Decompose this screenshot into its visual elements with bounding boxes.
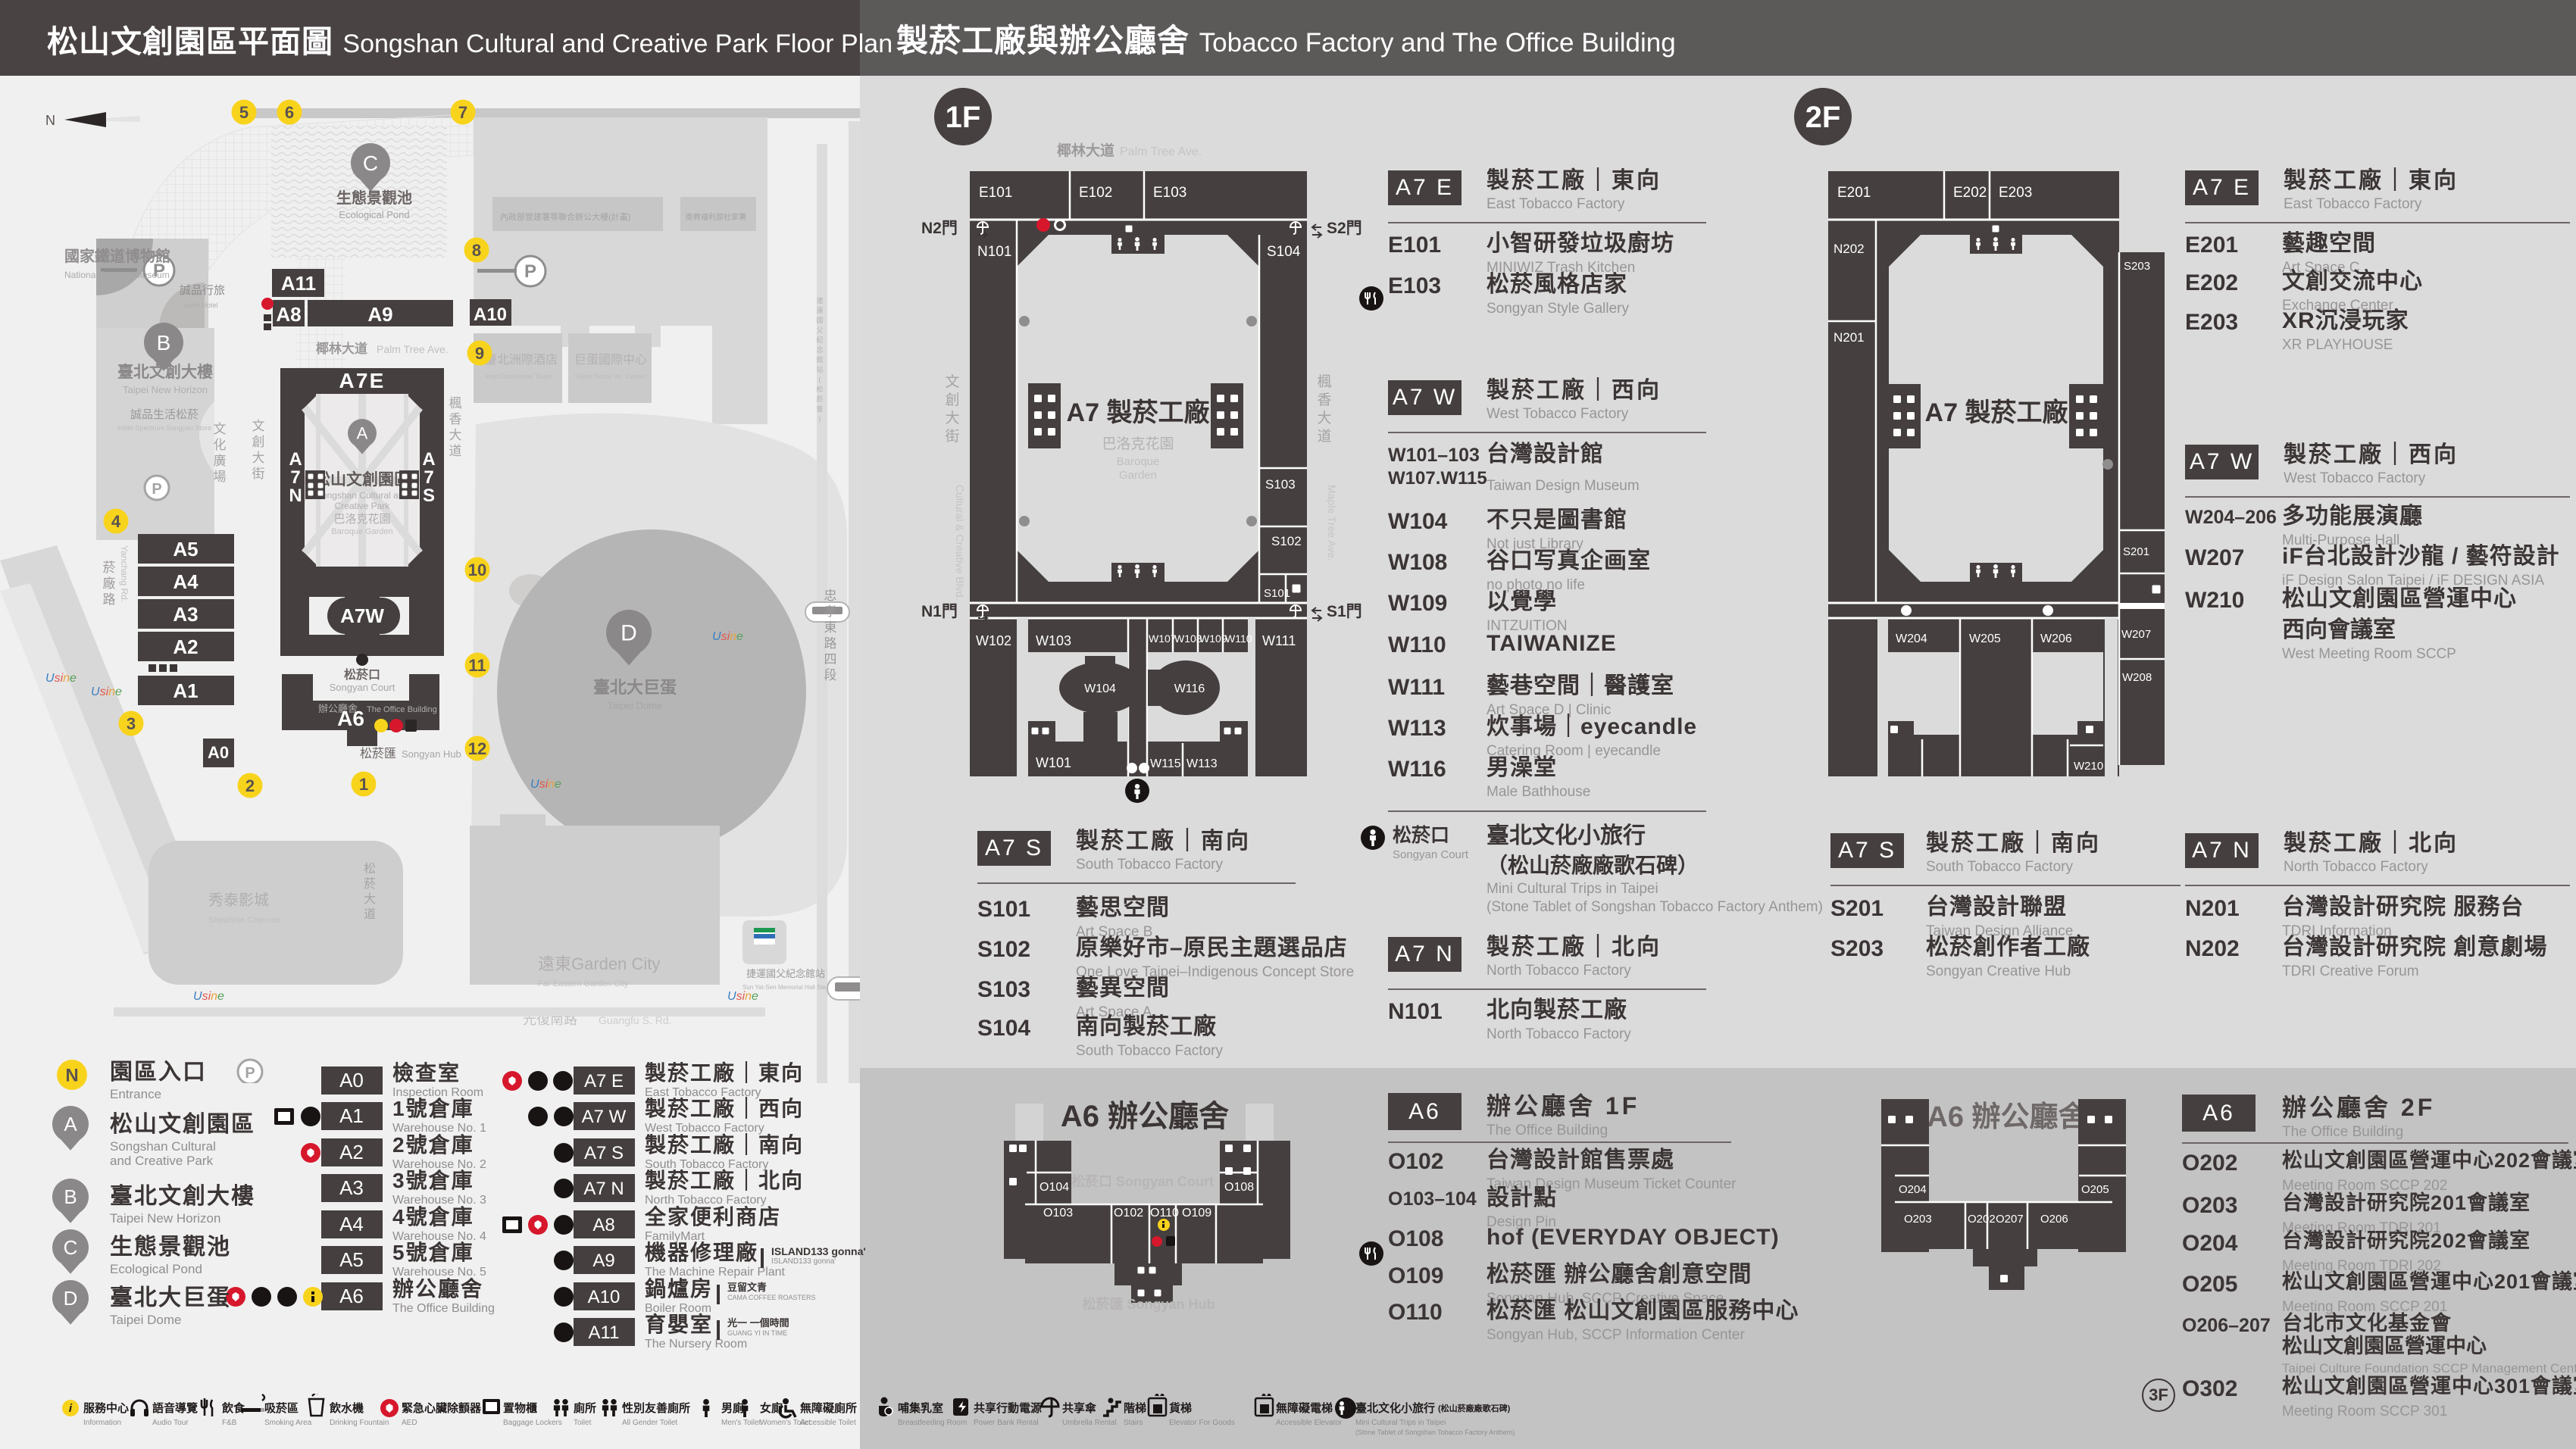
svg-text:內政部營建署等聯合辦公大樓(計畫): 內政部營建署等聯合辦公大樓(計畫) [500,211,630,222]
svg-text:Audio Tour: Audio Tour [152,1419,189,1427]
svg-text:W116: W116 [1174,682,1205,695]
svg-text:Usine: Usine [712,630,743,643]
svg-text:階梯: 階梯 [1124,1401,1146,1415]
svg-text:Maple Tree Ave.: Maple Tree Ave. [1326,485,1338,561]
svg-text:服務中心: 服務中心 [83,1401,129,1415]
svg-text:共享行動電源: 共享行動電源 [974,1401,1042,1415]
svg-text:P: P [524,261,536,282]
svg-text:N: N [289,486,302,506]
svg-text:4: 4 [111,512,121,531]
svg-text:(松山菸廠廠歌石碑): (松山菸廠廠歌石碑) [1438,1403,1511,1413]
svg-text:生態景觀池: 生態景觀池 [336,189,412,207]
svg-text:國家鐵道博物館: 國家鐵道博物館 [64,247,170,265]
svg-text:國: 國 [816,317,823,324]
svg-text:置物櫃: 置物櫃 [503,1401,537,1415]
svg-text:E203: E203 [1999,185,2032,201]
svg-text:路: 路 [824,636,837,651]
svg-text:A9: A9 [367,303,392,326]
svg-text:W204: W204 [1896,632,1927,645]
svg-text:男廁: 男廁 [721,1401,744,1415]
svg-text:Smoking Area: Smoking Area [264,1419,312,1427]
svg-text:W205: W205 [1969,632,2001,645]
svg-text:創: 創 [945,392,959,408]
svg-text:W110: W110 [1225,632,1252,645]
svg-text:Showtime Cinemas: Showtime Cinemas [208,916,280,925]
svg-text:Men's Toilet: Men's Toilet [721,1419,761,1427]
svg-text:S103: S103 [1265,477,1296,492]
svg-text:化: 化 [214,438,227,452]
svg-text:菸: 菸 [816,395,823,403]
svg-text:臺北文化小旅行: 臺北文化小旅行 [1355,1401,1435,1415]
svg-text:Songyan Hub: Songyan Hub [402,748,461,760]
svg-text:A6: A6 [337,707,364,730]
svg-text:Usine: Usine [193,990,224,1003]
svg-text:無障礙廁所: 無障礙廁所 [800,1401,857,1415]
svg-text:): ) [819,415,821,423]
svg-text:(: ( [819,376,821,383]
svg-text:O203: O203 [1904,1213,1932,1226]
svg-text:D: D [621,621,637,646]
svg-text:路: 路 [103,592,116,607]
svg-text:D: D [64,1287,78,1310]
svg-text:Garden: Garden [1119,469,1157,482]
svg-text:Taipei Dome Int. Center: Taipei Dome Int. Center [574,373,646,380]
svg-text:Drinking Fountain: Drinking Fountain [330,1419,389,1427]
svg-text:秀泰影城: 秀泰影城 [208,892,269,909]
svg-text:O207: O207 [1996,1213,2024,1226]
svg-text:Information: Information [83,1419,121,1427]
svg-text:松菸口 Songyan Court: 松菸口 Songyan Court [1071,1173,1214,1189]
svg-text:貨梯: 貨梯 [1169,1401,1192,1415]
svg-text:S201: S201 [2123,545,2149,558]
svg-text:W206: W206 [2040,632,2072,645]
svg-text:臺北文創大樓: 臺北文創大樓 [117,363,213,381]
svg-text:街: 街 [945,428,959,445]
svg-text:道: 道 [364,907,376,921]
svg-text:A: A [289,449,302,470]
svg-text:W107: W107 [1149,632,1177,645]
svg-text:A11: A11 [589,1323,620,1343]
svg-text:W104: W104 [1084,682,1116,695]
svg-text:大: 大 [1317,410,1331,426]
svg-text:四: 四 [824,652,837,667]
svg-text:飲水機: 飲水機 [329,1401,364,1415]
svg-text:巴洛克花園: 巴洛克花園 [1102,436,1174,452]
svg-text:大: 大 [449,428,462,442]
svg-text:菸: 菸 [103,561,116,575]
svg-text:臺北大巨蛋: 臺北大巨蛋 [593,678,677,697]
svg-text:Accessible Elevator: Accessible Elevator [1276,1419,1343,1427]
svg-text:W101: W101 [1036,755,1071,770]
svg-text:3: 3 [127,714,136,733]
svg-text:Stairs: Stairs [1124,1419,1143,1427]
svg-text:11: 11 [468,656,486,675]
svg-text:S: S [423,486,435,506]
svg-text:S104: S104 [1267,244,1301,260]
svg-text:Far Eastern Garden City: Far Eastern Garden City [538,979,629,988]
svg-text:A: A [357,424,368,443]
svg-text:W102: W102 [976,633,1011,648]
svg-text:7: 7 [290,467,300,488]
svg-text:無障礙電梯: 無障礙電梯 [1276,1401,1333,1415]
svg-text:Usine: Usine [45,672,77,685]
svg-text:O110: O110 [1150,1207,1179,1219]
svg-text:語音導覽: 語音導覽 [152,1401,198,1415]
svg-text:緊急心臟除顫器: 緊急心臟除顫器 [402,1401,482,1415]
svg-text:W115: W115 [1150,757,1181,770]
svg-text:誠品生活松菸: 誠品生活松菸 [130,408,199,421]
svg-text:O108: O108 [1224,1181,1254,1194]
svg-text:A6 辦公廳舍: A6 辦公廳舍 [1927,1101,2087,1133]
svg-text:(Stone Tablet of Songshan Toba: (Stone Tablet of Songshan Tobacco Factor… [1355,1429,1515,1436]
svg-text:E103: E103 [1153,185,1186,201]
svg-text:O206: O206 [2040,1213,2068,1226]
svg-text:松: 松 [364,862,376,876]
svg-text:O204: O204 [1899,1183,1927,1196]
svg-text:12: 12 [468,739,486,758]
svg-text:紀: 紀 [816,336,823,344]
svg-text:E202: E202 [1953,185,1987,201]
svg-text:吸菸區: 吸菸區 [264,1401,299,1415]
svg-text:文: 文 [945,373,959,390]
svg-text:街: 街 [252,467,265,481]
svg-text:巴洛克花園: 巴洛克花園 [333,513,390,526]
svg-text:A6 辦公廳舍: A6 辦公廳舍 [1061,1099,1229,1133]
svg-text:A: A [64,1113,77,1135]
svg-text:大: 大 [252,451,265,465]
svg-text:Ecological Pond: Ecological Pond [339,209,409,220]
svg-text:9: 9 [475,344,484,363]
svg-text:廣: 廣 [214,454,227,468]
svg-text:Accessible Toilet: Accessible Toilet [800,1419,856,1427]
svg-text:Baroque Garden: Baroque Garden [331,527,392,536]
svg-text:Palm Tree Ave.: Palm Tree Ave. [377,343,449,355]
svg-text:父: 父 [816,326,823,334]
svg-text:Taipei Dome: Taipei Dome [608,700,662,711]
svg-text:A4: A4 [173,570,199,593]
svg-text:共享傘: 共享傘 [1062,1401,1097,1415]
svg-text:文: 文 [252,419,265,433]
svg-text:E101: E101 [979,185,1012,201]
svg-text:場: 場 [214,470,227,484]
svg-text:S1門: S1門 [1327,603,1362,620]
svg-text:O102: O102 [1114,1207,1143,1219]
svg-text:W207: W207 [2121,628,2151,641]
svg-text:Songshan Cultural and: Songshan Cultural and [316,490,408,501]
svg-text:董: 董 [816,404,823,413]
svg-text:Umbrella Rental: Umbrella Rental [1062,1419,1117,1427]
svg-text:逮: 逮 [816,296,823,304]
svg-text:2: 2 [245,776,255,795]
svg-text:念: 念 [816,345,823,354]
svg-text:O205: O205 [2081,1183,2109,1196]
svg-text:菸: 菸 [364,877,376,891]
svg-text:大: 大 [945,410,959,426]
svg-text:10: 10 [468,561,486,579]
svg-text:A7W: A7W [340,604,384,627]
svg-text:7: 7 [458,103,467,122]
svg-text:Mini Cultural Trips in Taipei: Mini Cultural Trips in Taipei [1355,1419,1446,1427]
svg-text:松菸口: 松菸口 [344,667,380,682]
svg-text:Toilet: Toilet [574,1419,592,1427]
svg-text:誠品行旅: 誠品行旅 [180,284,225,297]
svg-text:Usine: Usine [727,990,758,1003]
svg-text:N101: N101 [977,244,1011,260]
svg-text:Power Bank Rental: Power Bank Rental [974,1419,1039,1427]
svg-text:A7 製菸工廠: A7 製菸工廠 [1925,398,2068,427]
svg-text:文: 文 [214,422,227,436]
svg-text:S2門: S2門 [1327,220,1362,237]
svg-text:W111: W111 [1262,633,1296,648]
svg-text:O104: O104 [1039,1181,1069,1194]
svg-text:Taipei New Horizon: Taipei New Horizon [123,384,208,395]
svg-text:A0: A0 [208,743,229,762]
svg-text:Creative Park: Creative Park [335,501,391,511]
svg-text:哺集乳室: 哺集乳室 [898,1401,943,1415]
svg-text:A7E: A7E [339,369,385,392]
svg-text:松: 松 [816,385,823,393]
svg-text:W108: W108 [1174,632,1202,645]
svg-text:A5: A5 [173,538,198,561]
svg-text:N1門: N1門 [921,603,958,620]
svg-text:eslite Hotel: eslite Hotel [184,301,218,309]
svg-text:A: A [422,449,435,470]
svg-text:N202: N202 [1834,242,1865,256]
svg-text:運: 運 [816,307,823,314]
svg-text:香: 香 [449,412,462,426]
svg-text:1F: 1F [946,101,981,134]
svg-text:N: N [45,113,55,128]
svg-text:Cultural & Creative Blvd.: Cultural & Creative Blvd. [954,485,966,601]
svg-text:N201: N201 [1834,330,1865,345]
svg-text:A10: A10 [474,304,507,325]
svg-text:W210: W210 [2074,760,2103,773]
svg-text:香: 香 [1317,392,1331,408]
svg-text:F&B: F&B [222,1419,237,1427]
svg-text:A11: A11 [281,272,316,295]
svg-text:廠: 廠 [103,576,116,591]
svg-text:捷運國父紀念館站: 捷運國父紀念館站 [746,968,825,979]
svg-text:臺北洲際酒店: 臺北洲際酒店 [485,353,558,367]
svg-text:松菸匯: 松菸匯 [360,747,396,760]
svg-text:椰林大道: 椰林大道 [1057,142,1114,159]
svg-text:O202: O202 [1968,1213,1996,1226]
svg-text:S101: S101 [1264,587,1290,600]
svg-text:6: 6 [285,103,294,122]
svg-text:S203: S203 [2124,260,2150,273]
svg-text:A1: A1 [173,679,198,702]
svg-text:C: C [64,1236,78,1259]
svg-text:性別友善廁所: 性別友善廁所 [622,1401,690,1415]
svg-text:C: C [363,151,378,175]
svg-text:道: 道 [1317,428,1331,445]
svg-text:eslite Spectrum Songyan Store: eslite Spectrum Songyan Store [117,424,211,432]
svg-text:廁所: 廁所 [574,1401,596,1415]
svg-text:InterContinental Taipei: InterContinental Taipei [485,373,552,380]
svg-text:O103: O103 [1043,1207,1073,1219]
svg-text:段: 段 [824,668,837,682]
svg-text:館: 館 [816,355,823,364]
svg-text:衛教福利部社家署: 衛教福利部社家署 [686,212,746,222]
svg-text:Usine: Usine [91,685,122,698]
svg-text:O109: O109 [1182,1207,1211,1219]
svg-text:Palm Tree Ave.: Palm Tree Ave. [1120,145,1202,158]
svg-text:W208: W208 [2122,671,2152,684]
svg-text:E102: E102 [1079,185,1112,201]
svg-text:All Gender Toilet: All Gender Toilet [622,1419,677,1427]
svg-text:忠: 忠 [824,589,837,603]
svg-text:W109: W109 [1199,632,1227,645]
svg-text:Usine: Usine [530,778,561,791]
svg-text:E201: E201 [1837,185,1871,201]
svg-text:B: B [64,1185,77,1208]
svg-text:Songyan Court: Songyan Court [330,682,395,693]
svg-text:楓: 楓 [449,396,462,411]
svg-text:A2: A2 [173,635,198,658]
svg-text:楓: 楓 [1317,373,1331,390]
svg-text:東: 東 [824,620,837,635]
svg-text:Elevator For Goods: Elevator For Goods [1169,1419,1235,1427]
svg-text:1: 1 [359,775,368,794]
svg-text:Baroque: Baroque [1117,455,1160,468]
svg-text:孝: 孝 [824,604,837,619]
svg-text:W103: W103 [1036,633,1071,648]
svg-text:5: 5 [239,103,249,122]
svg-text:B: B [157,331,171,354]
svg-text:松山文創園區: 松山文創園區 [314,470,410,489]
svg-text:松菸匯 Songyan Hub: 松菸匯 Songyan Hub [1083,1296,1215,1312]
svg-text:創: 創 [252,435,265,449]
svg-text:遠東Garden City: 遠東Garden City [538,954,660,973]
svg-text:N: N [65,1066,78,1086]
svg-text:道: 道 [449,444,462,458]
svg-text:A8: A8 [276,303,301,326]
svg-text:巨蛋國際中心: 巨蛋國際中心 [574,353,647,367]
svg-text:A7 製菸工廠: A7 製菸工廠 [1067,398,1210,427]
svg-text:椰林大道: 椰林大道 [316,341,367,356]
svg-text:P: P [152,481,161,498]
svg-text:2F: 2F [1805,101,1841,134]
svg-text:N2門: N2門 [921,220,958,237]
svg-text:W113: W113 [1186,757,1218,770]
svg-text:大: 大 [364,892,376,906]
svg-text:AED: AED [402,1419,417,1427]
svg-text:A3: A3 [173,603,198,626]
svg-text:Baggage Lockers: Baggage Lockers [503,1419,562,1427]
svg-text:站: 站 [816,365,823,373]
svg-text:National Railway Museum: National Railway Museum [64,270,170,280]
svg-text:The Office Building: The Office Building [367,705,437,714]
svg-text:7: 7 [424,467,433,488]
svg-text:S102: S102 [1271,534,1302,548]
svg-text:Yanchang Rd.: Yanchang Rd. [119,545,130,602]
svg-text:8: 8 [472,241,481,260]
svg-text:Breastfeeding Room: Breastfeeding Room [898,1419,967,1427]
